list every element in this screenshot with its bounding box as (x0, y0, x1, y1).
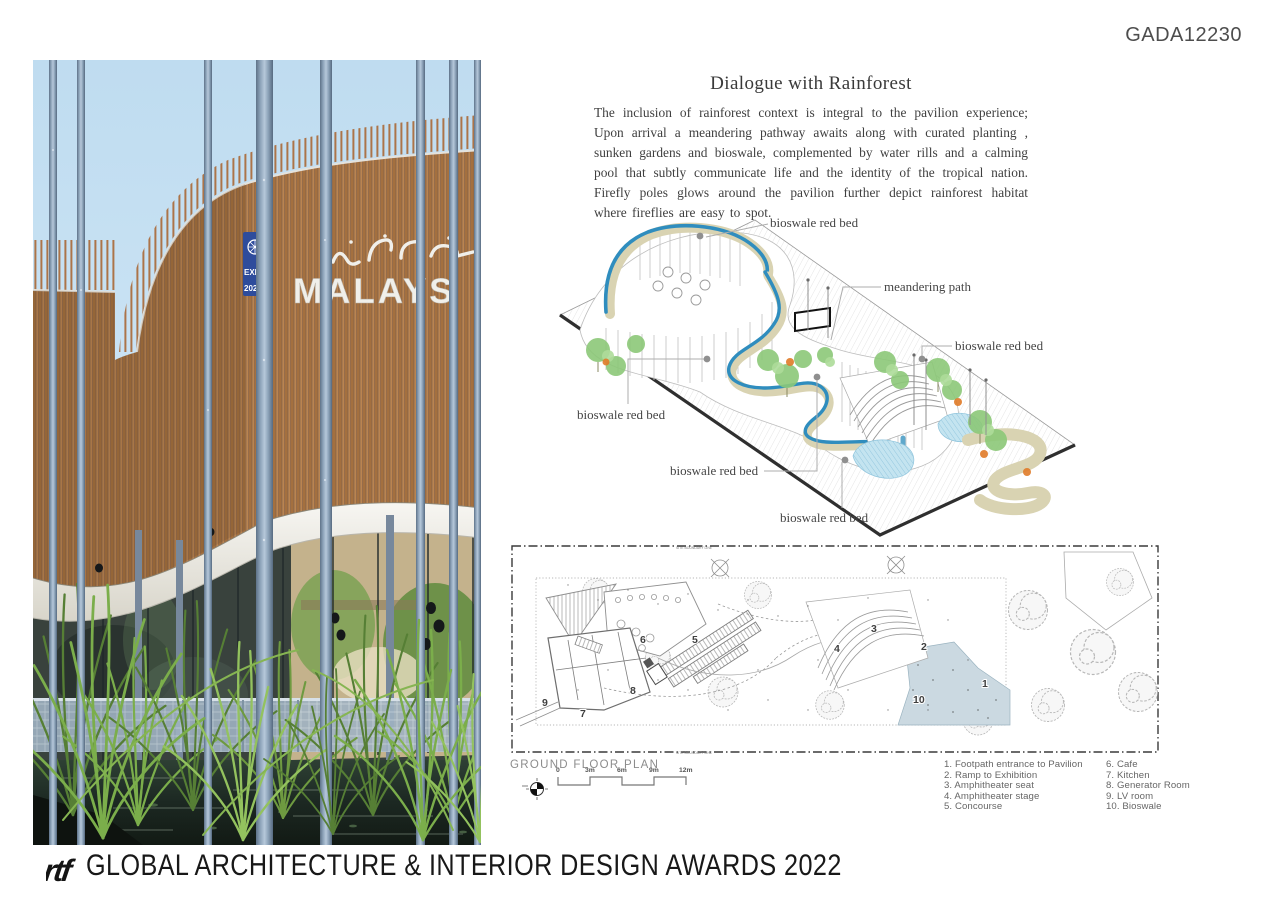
survey-marks (711, 556, 905, 577)
svg-text:8: 8 (630, 685, 636, 697)
svg-text:6: 6 (640, 634, 646, 646)
svg-text:12m: 12m (679, 767, 693, 774)
pavilion-photo: MALAYS EXPO 2020 (33, 60, 481, 845)
diagram-label-meandering-path: meandering path (884, 279, 971, 294)
svg-text:rtf: rtf (46, 853, 77, 888)
boundary-label-bottom: SITE BOUNDARY LINE (676, 751, 713, 755)
ground-floor-plan: SITE BOUNDARY LINE SITE BOUNDARY LINE (508, 540, 1164, 758)
diagram-label-mid: bioswale red bed (670, 463, 759, 478)
svg-text:9: 9 (542, 697, 548, 709)
legend-item: 1. Footpath entrance to Pavilion (944, 760, 1090, 771)
rtf-logo: rtf (46, 850, 90, 890)
svg-text:9m: 9m (649, 767, 659, 774)
svg-text:7: 7 (580, 708, 586, 720)
submission-code: GADA12230 (1125, 24, 1242, 47)
sign-board (795, 308, 830, 331)
award-title: GLOBAL ARCHITECTURE & INTERIOR DESIGN AW… (86, 849, 842, 883)
svg-text:3m: 3m (585, 767, 595, 774)
svg-text:2: 2 (921, 641, 927, 653)
article-body: The inclusion of rainforest context is i… (594, 103, 1028, 223)
malaysia-sign-text: MALAYS (293, 272, 456, 311)
svg-text:3: 3 (871, 623, 877, 635)
page-title: Dialogue with Rainforest (594, 73, 1028, 95)
svg-text:6m: 6m (617, 767, 627, 774)
plan-pentagon (1064, 552, 1152, 630)
plan-legend: 1. Footpath entrance to Pavilion 2. Ramp… (944, 760, 1188, 813)
plan-svg: SITE BOUNDARY LINE SITE BOUNDARY LINE (508, 540, 1164, 758)
legend-item: 6. Cafe (1106, 760, 1188, 771)
axonometric-diagram: bioswale red bed meandering path bioswal… (540, 210, 1085, 540)
scale-bar: 0 3m 6m 9m 12m (548, 764, 698, 790)
svg-text:10: 10 (913, 694, 925, 706)
award-board-page: GADA12230 (0, 0, 1272, 900)
legend-column-2: 6. Cafe 7. Kitchen 8. Generator Room 9. … (1106, 760, 1188, 813)
facade-left-fins (33, 240, 115, 290)
diagram-label-top: bioswale red bed (770, 215, 859, 230)
boundary-label-top: SITE BOUNDARY LINE (676, 546, 713, 550)
legend-item: 5. Concourse (944, 802, 1090, 813)
diagram-label-right: bioswale red bed (955, 338, 1044, 353)
svg-text:0: 0 (556, 767, 560, 774)
svg-text:4: 4 (834, 643, 840, 655)
diagram-label-bottom: bioswale red bed (780, 510, 869, 525)
diagram-label-left: bioswale red bed (577, 407, 666, 422)
svg-text:5: 5 (692, 634, 698, 646)
legend-item: 10. Bioswale (1106, 802, 1188, 813)
legend-column-1: 1. Footpath entrance to Pavilion 2. Ramp… (944, 760, 1090, 813)
pavilion-photo-illustration: MALAYS EXPO 2020 (33, 60, 481, 845)
svg-text:1: 1 (982, 678, 988, 690)
axon-svg: bioswale red bed meandering path bioswal… (540, 210, 1085, 540)
